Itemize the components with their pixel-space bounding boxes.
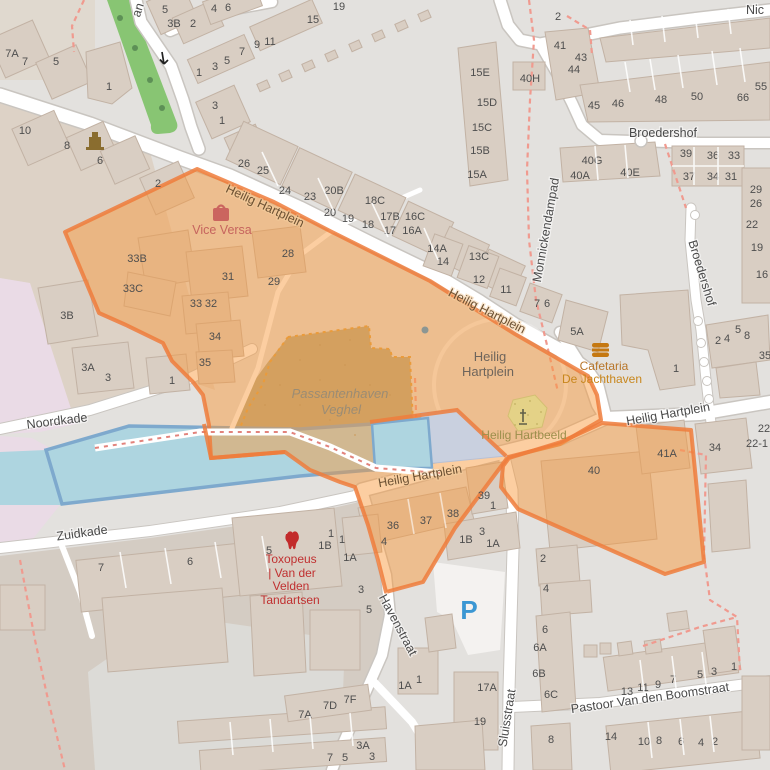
svg-text:11: 11	[500, 284, 511, 296]
svg-text:43: 43	[575, 52, 587, 64]
svg-text:14: 14	[605, 731, 617, 743]
svg-text:5: 5	[53, 56, 59, 68]
svg-text:5: 5	[342, 752, 348, 764]
svg-text:Nic: Nic	[746, 3, 764, 17]
svg-text:5: 5	[366, 604, 372, 616]
svg-text:22: 22	[746, 219, 758, 231]
svg-text:24: 24	[279, 185, 291, 197]
svg-text:1: 1	[328, 528, 334, 540]
svg-text:1B: 1B	[318, 540, 331, 552]
svg-text:19: 19	[342, 213, 354, 225]
svg-text:5A: 5A	[570, 326, 584, 338]
svg-text:46: 46	[612, 98, 624, 110]
svg-text:32: 32	[205, 298, 217, 310]
svg-text:7F: 7F	[344, 694, 357, 706]
svg-text:15B: 15B	[470, 145, 490, 157]
svg-text:6C: 6C	[544, 689, 558, 701]
svg-text:25: 25	[257, 165, 269, 177]
svg-text:18: 18	[362, 219, 374, 231]
svg-text:19: 19	[333, 1, 345, 13]
svg-text:Hartplein: Hartplein	[462, 364, 514, 379]
svg-text:15C: 15C	[472, 122, 492, 134]
svg-text:40H: 40H	[520, 73, 540, 85]
svg-text:45: 45	[588, 100, 600, 112]
svg-text:8: 8	[548, 734, 554, 746]
svg-text:Veghel: Veghel	[321, 402, 362, 417]
svg-text:2: 2	[715, 335, 721, 347]
svg-text:33B: 33B	[127, 253, 147, 265]
svg-text:29: 29	[268, 276, 280, 288]
svg-text:28: 28	[282, 248, 294, 260]
svg-text:1A: 1A	[343, 552, 357, 564]
svg-text:20B: 20B	[324, 185, 344, 197]
svg-text:17A: 17A	[477, 682, 497, 694]
svg-text:18C: 18C	[365, 195, 385, 207]
svg-text:6: 6	[225, 2, 231, 14]
svg-text:Broedershof: Broedershof	[629, 126, 698, 140]
svg-text:41: 41	[554, 40, 566, 52]
svg-text:2: 2	[190, 18, 196, 30]
svg-text:14A: 14A	[427, 243, 447, 255]
svg-text:29: 29	[750, 184, 762, 196]
svg-text:7A: 7A	[5, 48, 19, 60]
svg-text:Toxopeus: Toxopeus	[265, 552, 316, 566]
svg-text:Velden: Velden	[273, 579, 310, 593]
svg-text:Heilig Hartbeeld: Heilig Hartbeeld	[481, 428, 566, 442]
svg-text:10: 10	[19, 125, 31, 137]
svg-text:3: 3	[358, 584, 364, 596]
svg-text:6: 6	[544, 298, 550, 310]
svg-text:7D: 7D	[323, 700, 337, 712]
svg-text:P: P	[460, 595, 477, 625]
svg-text:1: 1	[490, 500, 496, 512]
svg-text:34: 34	[709, 442, 721, 454]
svg-text:15A: 15A	[467, 169, 487, 181]
svg-text:3B: 3B	[167, 18, 180, 30]
svg-text:3: 3	[212, 100, 218, 112]
svg-text:15E: 15E	[470, 67, 490, 79]
svg-text:6A: 6A	[533, 642, 547, 654]
svg-text:4: 4	[211, 3, 217, 15]
svg-text:3: 3	[369, 751, 375, 763]
svg-text:1: 1	[196, 67, 202, 79]
svg-text:20: 20	[324, 207, 336, 219]
svg-text:1: 1	[339, 534, 345, 546]
svg-text:7: 7	[22, 56, 28, 68]
svg-text:14: 14	[437, 256, 449, 268]
svg-text:4: 4	[381, 536, 387, 548]
svg-text:5: 5	[697, 669, 703, 681]
svg-text:5: 5	[162, 4, 168, 16]
svg-text:22: 22	[758, 423, 770, 435]
svg-text:35: 35	[759, 350, 770, 362]
svg-text:1A: 1A	[398, 680, 412, 692]
svg-text:1: 1	[416, 674, 422, 686]
svg-text:3: 3	[479, 526, 485, 538]
svg-text:40G: 40G	[582, 155, 603, 167]
svg-text:40E: 40E	[620, 167, 640, 179]
svg-text:3B: 3B	[60, 310, 73, 322]
svg-text:7: 7	[534, 298, 540, 310]
svg-text:2: 2	[555, 11, 561, 23]
svg-text:1: 1	[169, 375, 175, 387]
svg-text:22-1: 22-1	[746, 438, 768, 450]
svg-text:17B: 17B	[380, 211, 400, 223]
svg-text:4: 4	[724, 333, 730, 345]
svg-text:33: 33	[728, 150, 740, 162]
svg-text:7: 7	[327, 752, 333, 764]
svg-text:66: 66	[737, 92, 749, 104]
svg-text:39: 39	[478, 490, 490, 502]
svg-text:5: 5	[224, 55, 230, 67]
svg-text:19: 19	[474, 716, 486, 728]
svg-text:2: 2	[155, 178, 161, 190]
svg-text:9: 9	[254, 39, 260, 51]
svg-text:3: 3	[212, 61, 218, 73]
svg-text:48: 48	[655, 94, 667, 106]
svg-text:6: 6	[97, 155, 103, 167]
svg-text:41A: 41A	[657, 448, 677, 460]
svg-text:Heilig: Heilig	[474, 349, 507, 364]
svg-text:37: 37	[420, 515, 432, 527]
svg-text:39: 39	[680, 148, 692, 160]
svg-text:De Jachthaven: De Jachthaven	[562, 372, 642, 386]
svg-text:7: 7	[98, 562, 104, 574]
svg-text:Tandartsen: Tandartsen	[260, 593, 319, 607]
svg-text:2: 2	[540, 553, 546, 565]
svg-text:13C: 13C	[469, 251, 489, 263]
svg-text:1: 1	[673, 363, 679, 375]
svg-text:1: 1	[106, 81, 112, 93]
svg-text:1: 1	[731, 661, 737, 673]
svg-text:16: 16	[756, 269, 768, 281]
svg-text:4: 4	[698, 737, 704, 749]
svg-text:16A: 16A	[402, 225, 422, 237]
svg-text:Vice Versa: Vice Versa	[192, 223, 252, 237]
svg-text:8: 8	[64, 140, 70, 152]
svg-text:26: 26	[238, 158, 250, 170]
svg-text:55: 55	[755, 81, 767, 93]
svg-text:5: 5	[735, 324, 741, 336]
svg-text:19: 19	[751, 242, 763, 254]
svg-text:50: 50	[691, 91, 703, 103]
svg-text:7: 7	[239, 46, 245, 58]
svg-text:13: 13	[621, 686, 633, 698]
svg-text:26: 26	[750, 198, 762, 210]
svg-text:8: 8	[656, 735, 662, 747]
svg-text:36: 36	[387, 520, 399, 532]
svg-text:12: 12	[473, 274, 485, 286]
svg-text:1A: 1A	[486, 538, 500, 550]
svg-text:6: 6	[542, 624, 548, 636]
svg-text:9: 9	[655, 679, 661, 691]
svg-text:4: 4	[543, 583, 549, 595]
svg-text:6B: 6B	[532, 668, 545, 680]
svg-text:44: 44	[568, 64, 580, 76]
svg-text:23: 23	[304, 191, 316, 203]
svg-text:8: 8	[744, 330, 750, 342]
svg-text:34: 34	[209, 331, 221, 343]
svg-text:10: 10	[638, 736, 650, 748]
svg-text:1: 1	[219, 115, 225, 127]
svg-text:15: 15	[307, 14, 319, 26]
svg-text:40: 40	[588, 465, 600, 477]
svg-text:31: 31	[222, 271, 234, 283]
svg-text:6: 6	[187, 556, 193, 568]
svg-text:3: 3	[105, 372, 111, 384]
svg-text:Cafetaria: Cafetaria	[580, 359, 629, 373]
svg-text:16C: 16C	[405, 211, 425, 223]
svg-text:Passantenhaven: Passantenhaven	[292, 386, 389, 401]
svg-text:3: 3	[711, 666, 717, 678]
svg-text:40A: 40A	[570, 170, 590, 182]
svg-text:| Van der: | Van der	[268, 566, 316, 580]
svg-text:31: 31	[725, 171, 737, 183]
svg-text:35: 35	[199, 357, 211, 369]
svg-text:3A: 3A	[81, 362, 95, 374]
svg-text:38: 38	[447, 508, 459, 520]
svg-text:15D: 15D	[477, 97, 497, 109]
svg-text:33: 33	[190, 298, 202, 310]
svg-text:11: 11	[264, 36, 275, 48]
svg-text:5: 5	[266, 545, 272, 557]
svg-text:1B: 1B	[459, 534, 472, 546]
svg-text:33C: 33C	[123, 283, 143, 295]
